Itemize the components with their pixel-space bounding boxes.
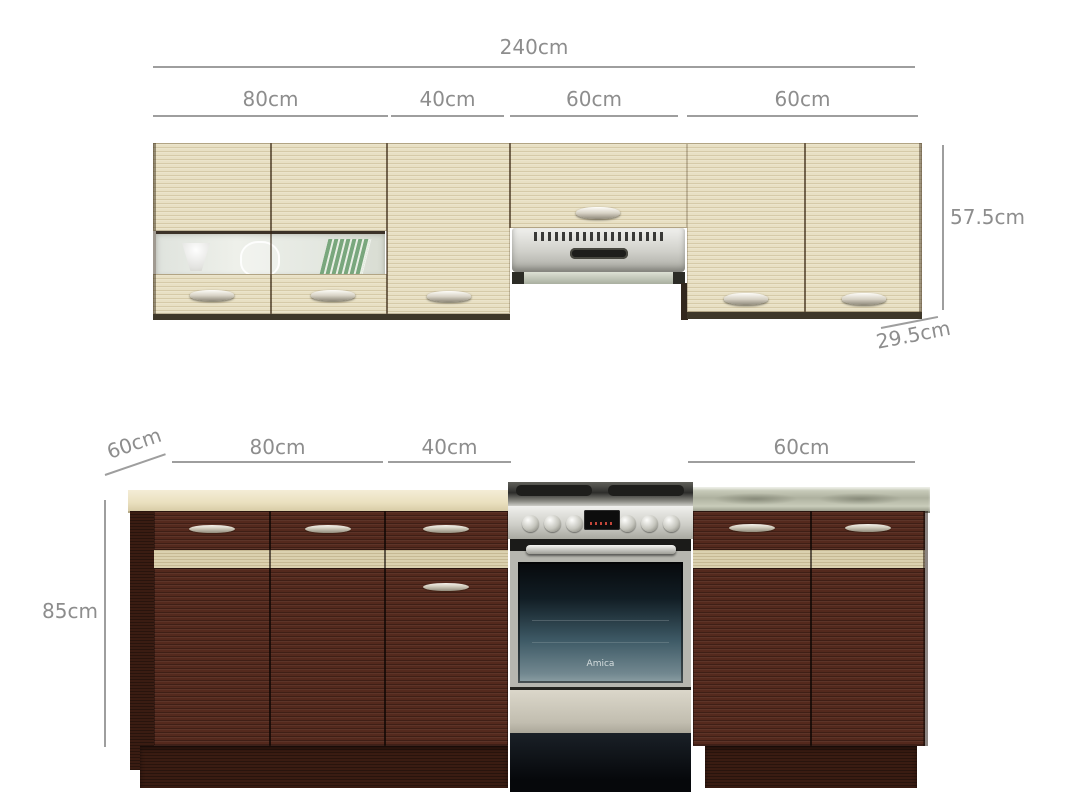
dim-upper-height-label: 57.5cm bbox=[950, 206, 1040, 228]
oven-door: Amica bbox=[510, 539, 691, 687]
sink-unit-door-left bbox=[693, 568, 811, 746]
range-hood bbox=[512, 228, 685, 272]
dim-upper-seg-60b-label: 60cm bbox=[687, 88, 918, 110]
base-cabinets: Amica bbox=[128, 482, 930, 794]
oven-handle bbox=[526, 545, 676, 554]
wall-cabinet-hood-door bbox=[510, 143, 687, 228]
drawer-handle bbox=[189, 525, 235, 533]
dim-lower-seg-60-label: 60cm bbox=[688, 436, 915, 458]
dim-upper-seg-40-label: 40cm bbox=[391, 88, 504, 110]
door-handle bbox=[576, 207, 620, 219]
hood-vent-grille bbox=[534, 232, 666, 241]
dim-upper-seg-60b-line bbox=[687, 115, 918, 117]
sink-unit-drawer-right bbox=[811, 511, 925, 550]
door-gap bbox=[384, 511, 386, 746]
hood-control-panel bbox=[570, 248, 628, 259]
wall-cabinet-40-door bbox=[387, 143, 510, 314]
door-handle bbox=[311, 290, 355, 301]
door-gap bbox=[509, 143, 511, 228]
cooker: Amica bbox=[508, 482, 693, 792]
cooker-knob bbox=[619, 515, 636, 532]
dim-lower-height-label: 85cm bbox=[42, 600, 100, 622]
wall-cabinet-80-door-right bbox=[271, 143, 387, 231]
hood-bracket-left bbox=[512, 272, 524, 284]
sink-countertop bbox=[688, 487, 930, 513]
dim-upper-depth-label: 29.5cm bbox=[874, 317, 953, 353]
wall-cabinet-80-flap-right bbox=[271, 274, 387, 314]
accent-strip bbox=[693, 550, 925, 568]
cabinet-shadow bbox=[387, 314, 510, 320]
base-40-drawer bbox=[385, 511, 508, 550]
dim-upper-seg-80-line bbox=[153, 115, 388, 117]
wall-cabinet-80-flap-left bbox=[153, 274, 271, 314]
base-80-door-right bbox=[270, 568, 385, 746]
dim-lower-seg-40-line bbox=[388, 461, 511, 463]
display-digits bbox=[590, 522, 614, 525]
oven-brand-logo: Amica bbox=[518, 658, 683, 670]
dim-upper-seg-40-line bbox=[391, 115, 504, 117]
plinth bbox=[705, 746, 917, 788]
drawer-handle bbox=[729, 524, 775, 532]
base-80-door-left bbox=[154, 568, 270, 746]
dim-lower-seg-40-label: 40cm bbox=[388, 436, 511, 458]
cabinet-edge bbox=[919, 143, 922, 312]
door-handle bbox=[427, 291, 471, 302]
countertop bbox=[128, 490, 509, 513]
dim-upper-seg-60a-label: 60cm bbox=[510, 88, 678, 110]
door-handle bbox=[842, 293, 886, 305]
dim-upper-seg-80-label: 80cm bbox=[153, 88, 388, 110]
wall-cabinet-60-door-right bbox=[805, 143, 922, 312]
cooker-display bbox=[584, 510, 620, 530]
wall-cabinets bbox=[153, 143, 922, 320]
cabinet-shadow bbox=[687, 312, 922, 319]
cooker-storage-drawer bbox=[510, 687, 691, 736]
cooker-hob bbox=[508, 482, 693, 506]
door-handle bbox=[423, 583, 469, 591]
oven-rack-reflection bbox=[532, 620, 669, 621]
dim-lower-seg-80-line bbox=[172, 461, 383, 463]
door-gap bbox=[386, 143, 388, 314]
sink-bowl-left bbox=[713, 493, 798, 505]
wall-cabinet-60-door-left bbox=[687, 143, 805, 312]
door-gap bbox=[804, 143, 806, 312]
wall-cabinet-80-door-left bbox=[153, 143, 271, 231]
base-40-door bbox=[385, 568, 508, 746]
cabinet-edge bbox=[923, 511, 928, 746]
hood-light-shelf bbox=[512, 272, 685, 284]
oven-rack-reflection bbox=[532, 642, 669, 643]
cooker-knob bbox=[641, 515, 658, 532]
cabinet-edge bbox=[153, 143, 156, 314]
cabinet-shadow bbox=[153, 314, 387, 320]
sink-unit-drawer-left bbox=[693, 511, 811, 550]
dim-upper-height-line bbox=[942, 145, 944, 310]
door-handle bbox=[190, 290, 234, 301]
glass-pitcher bbox=[240, 241, 280, 277]
oven-window: Amica bbox=[518, 562, 683, 683]
sink-bowl-right bbox=[818, 493, 903, 505]
door-gap bbox=[269, 511, 271, 746]
books bbox=[320, 239, 371, 274]
drawer-handle bbox=[423, 525, 469, 533]
cooker-control-panel bbox=[508, 506, 693, 539]
dim-lower-seg-60-line bbox=[688, 461, 915, 463]
glass-vase bbox=[182, 243, 210, 271]
door-gap bbox=[810, 511, 812, 746]
hob-grate-left bbox=[516, 485, 592, 496]
hob-grate-right bbox=[608, 485, 684, 496]
dim-lower-height-line bbox=[104, 500, 106, 747]
accent-strip bbox=[385, 550, 508, 568]
cooker-knob bbox=[522, 515, 539, 532]
cooker-knob bbox=[566, 515, 583, 532]
dim-lower-depth-label: 60cm bbox=[96, 421, 171, 465]
drawer-handle bbox=[305, 525, 351, 533]
drawer-handle bbox=[845, 524, 891, 532]
sink-unit-door-right bbox=[811, 568, 925, 746]
cooker-knob bbox=[663, 515, 680, 532]
door-gap bbox=[270, 143, 272, 314]
dim-upper-total-line bbox=[153, 66, 915, 68]
base-80-drawer-left bbox=[154, 511, 270, 550]
dim-upper-total-label: 240cm bbox=[153, 36, 915, 58]
door-handle bbox=[724, 293, 768, 305]
cooker-knob bbox=[544, 515, 561, 532]
cooker-base bbox=[510, 733, 691, 792]
dim-lower-seg-80-label: 80cm bbox=[172, 436, 383, 458]
base-80-drawer-right bbox=[270, 511, 385, 550]
cabinet-side-panel bbox=[130, 511, 154, 770]
dim-upper-seg-60a-line bbox=[510, 115, 678, 117]
plinth bbox=[140, 746, 508, 788]
kitchen-dimension-diagram: 240cm 80cm 40cm 60cm 60cm 57.5cm 29.5cm bbox=[0, 0, 1079, 809]
